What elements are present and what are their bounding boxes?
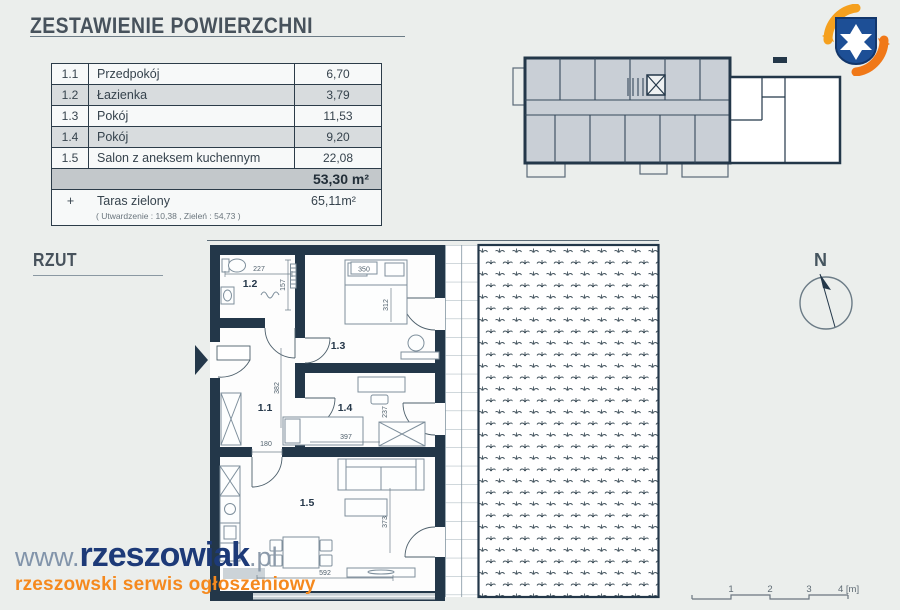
scale-tick-4: 4 [m] xyxy=(838,584,859,595)
area-summary-table: 1.1 Przedpokój 6,70 1.2 Łazienka 3,79 1.… xyxy=(51,63,382,226)
room-label-1-2: 1.2 xyxy=(243,278,258,290)
dim-397: 397 xyxy=(340,434,352,441)
table-row: 1.4 Pokój 9,20 xyxy=(52,127,381,148)
table-row: 1.1 Przedpokój 6,70 xyxy=(52,64,381,85)
plan-heading: RZUT xyxy=(33,250,83,271)
terrace-note: ( Utwardzenie : 10,38 , Zieleń : 54,73 ) xyxy=(96,211,381,221)
room-area: 11,53 xyxy=(295,109,381,123)
plan-heading-underline xyxy=(33,275,163,276)
dim-373: 373 xyxy=(382,516,389,528)
room-area: 6,70 xyxy=(295,67,381,81)
north-label: N xyxy=(814,250,827,270)
scale-bar: 1 2 3 4 [m] xyxy=(680,583,875,607)
row-number: 1.4 xyxy=(52,127,89,147)
room-label-1-5: 1.5 xyxy=(300,497,315,509)
page: ZESTAWIENIE POWIERZCHNI 1.1 Przedpokój 6… xyxy=(0,0,900,610)
brand-tagline: rzeszowski serwis ogłoszeniowy xyxy=(15,575,316,594)
dim-227: 227 xyxy=(253,266,265,273)
room-label-1-1: 1.1 xyxy=(258,402,273,414)
terrace-green-area xyxy=(479,245,659,597)
terrace-area: 65,11m² xyxy=(295,194,381,208)
table-row: 1.5 Salon z aneksem kuchennym 22,08 xyxy=(52,148,381,169)
brand-tld: .pl xyxy=(249,542,278,572)
building-overview xyxy=(500,45,860,185)
plus-sign: + xyxy=(52,194,89,208)
room-area: 3,79 xyxy=(295,88,381,102)
dim-382: 382 xyxy=(274,382,281,394)
room-label-1-4: 1.4 xyxy=(338,402,353,414)
scale-tick-3: 3 xyxy=(806,584,811,595)
row-number: 1.1 xyxy=(52,64,89,84)
dim-237: 237 xyxy=(382,406,389,418)
room-name: Salon z aneksem kuchennym xyxy=(89,148,295,168)
room-name: Pokój xyxy=(89,127,295,147)
room-name: Łazienka xyxy=(89,85,295,105)
brand-name: rzeszowiak xyxy=(80,536,250,574)
row-number: 1.3 xyxy=(52,106,89,126)
elevator-icon xyxy=(647,75,665,95)
brand-www: www. xyxy=(15,542,80,572)
row-number: 1.2 xyxy=(52,85,89,105)
entrance-arrow-icon xyxy=(195,345,208,375)
scale-tick-2: 2 xyxy=(767,584,772,595)
city-crest-icon xyxy=(820,4,892,76)
room-label-1-3: 1.3 xyxy=(331,340,346,352)
site-watermark: www.rzeszowiak.pl rzeszowski serwis ogło… xyxy=(15,538,316,594)
terrace-row: + Taras zielony 65,11m² ( Utwardzenie : … xyxy=(52,190,381,225)
dim-350: 350 xyxy=(358,267,370,274)
row-number: 1.5 xyxy=(52,148,89,168)
room-area: 9,20 xyxy=(295,130,381,144)
scale-tick-1: 1 xyxy=(728,584,733,595)
terrace-paving xyxy=(445,245,479,597)
room-name: Pokój xyxy=(89,106,295,126)
north-compass: N xyxy=(790,246,860,338)
room-area: 22,08 xyxy=(295,151,381,165)
dim-180: 180 xyxy=(260,441,272,448)
terrace-name: Taras zielony xyxy=(89,194,295,208)
total-area-value: 53,30 m² xyxy=(313,171,369,187)
table-row: 1.2 Łazienka 3,79 xyxy=(52,85,381,106)
room-name: Przedpokój xyxy=(89,64,295,84)
scale-line xyxy=(692,595,848,599)
dim-592: 592 xyxy=(319,570,331,577)
table-row: 1.3 Pokój 11,53 xyxy=(52,106,381,127)
total-area-row: 53,30 m² xyxy=(52,169,381,190)
title-underline xyxy=(30,36,405,37)
highlighted-unit xyxy=(730,77,840,163)
dim-312: 312 xyxy=(383,299,390,311)
dim-157: 157 xyxy=(280,279,287,291)
